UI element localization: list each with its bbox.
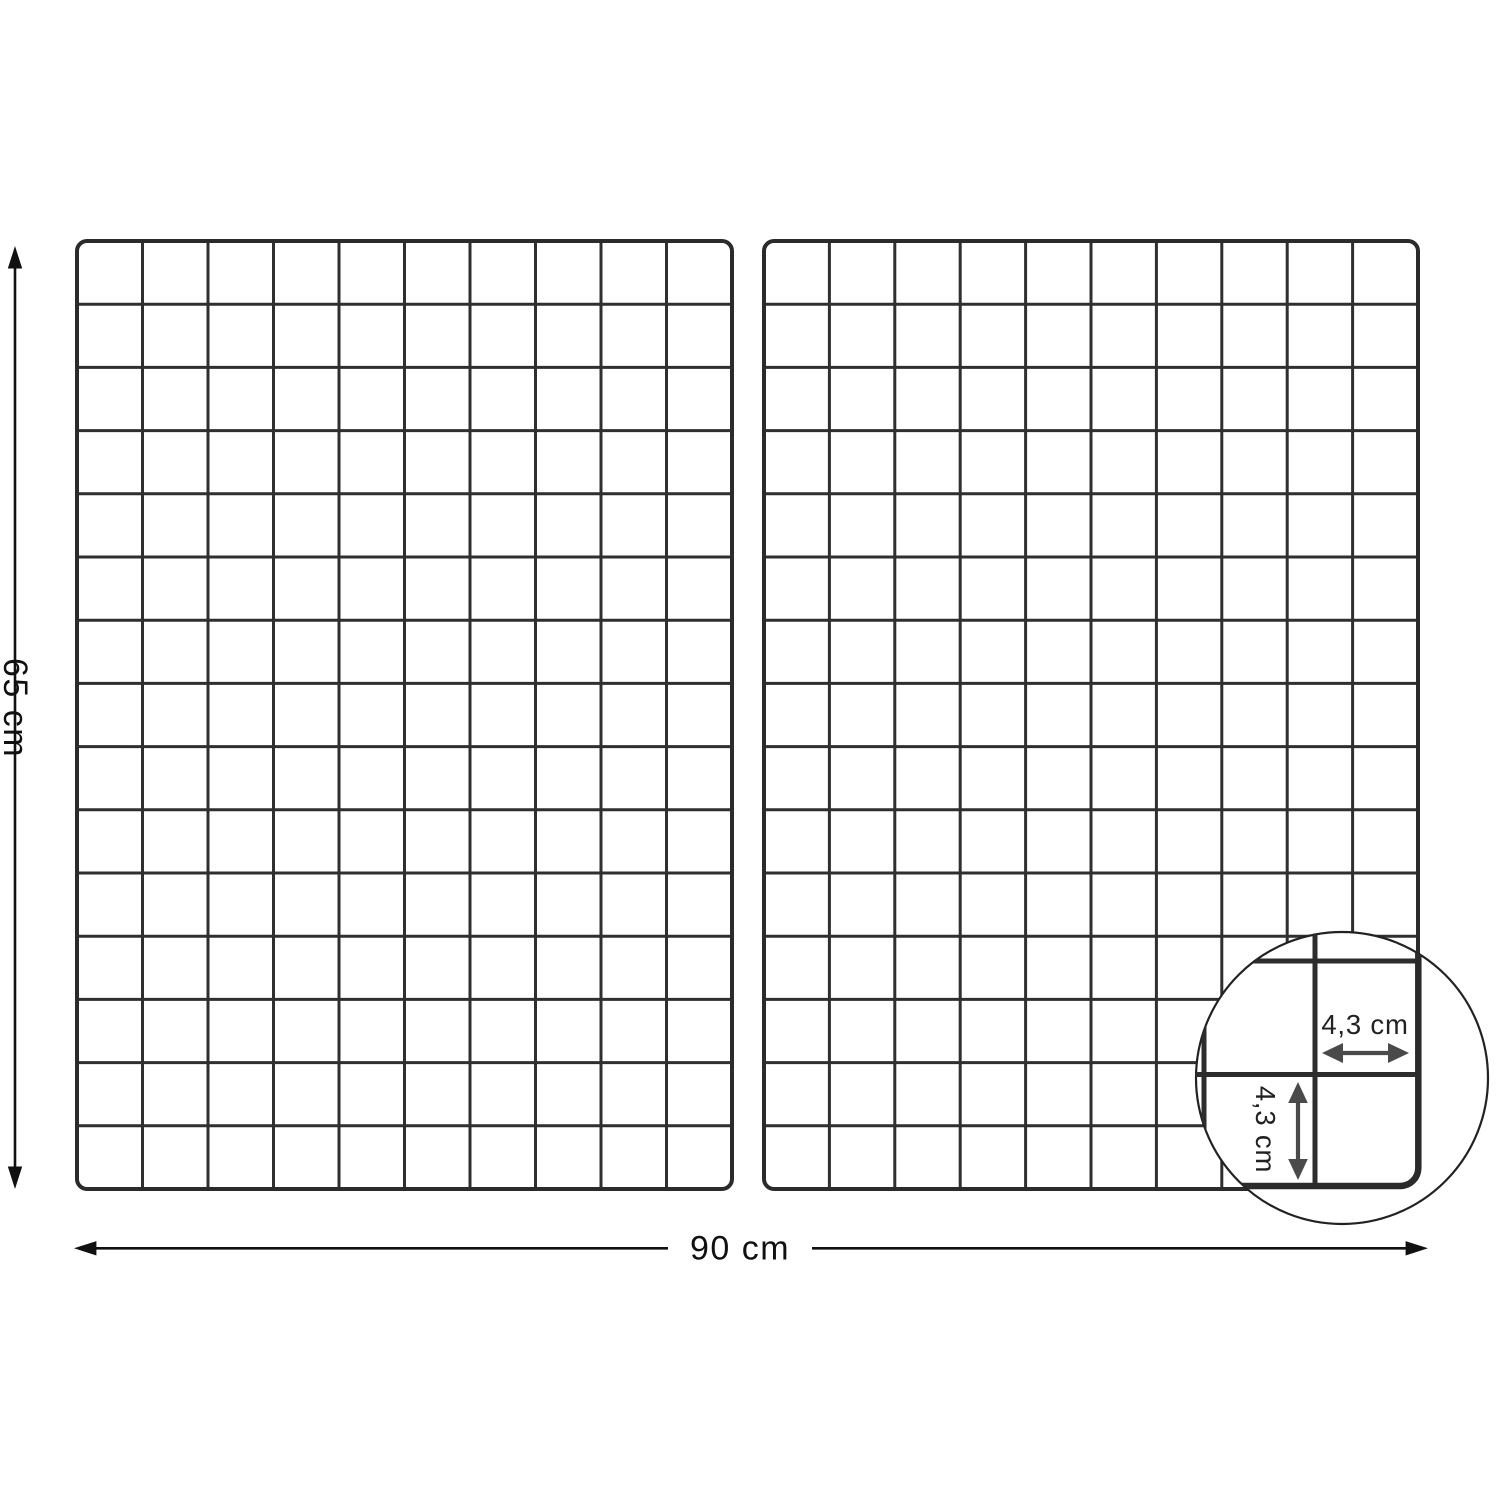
- svg-text:4,3 cm: 4,3 cm: [1321, 1009, 1408, 1040]
- svg-text:90 cm: 90 cm: [690, 1229, 790, 1267]
- svg-text:65 cm: 65 cm: [0, 658, 34, 758]
- svg-text:4,3 cm: 4,3 cm: [1250, 1086, 1281, 1173]
